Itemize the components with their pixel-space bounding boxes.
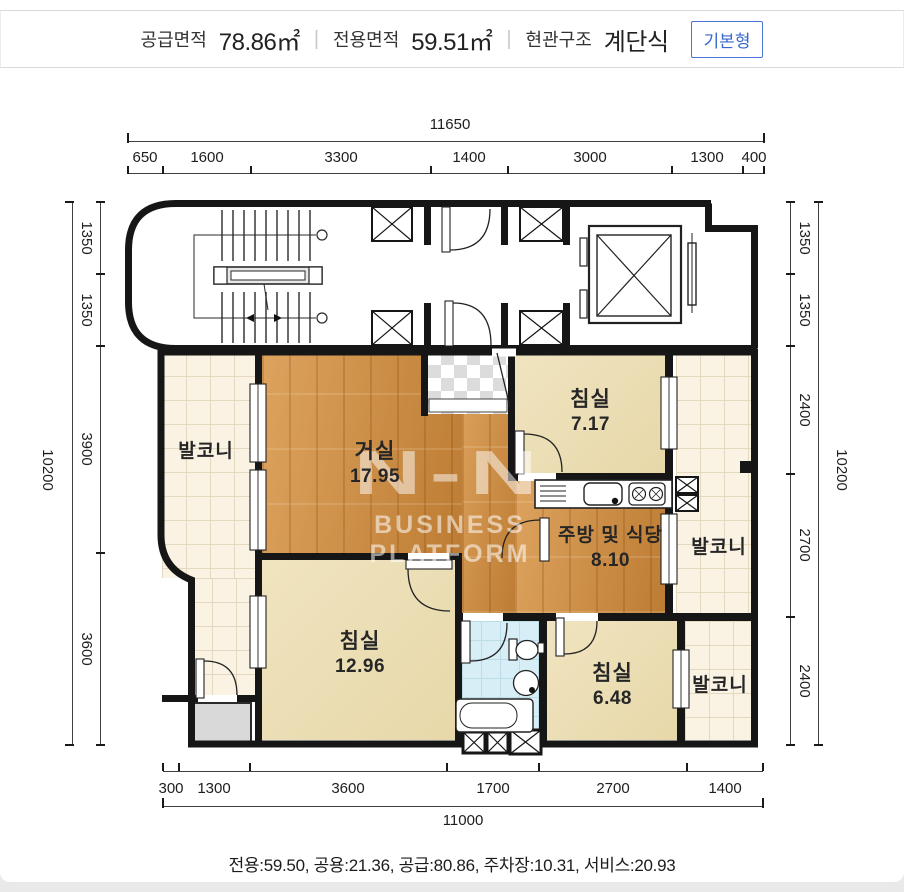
dim-left-seg2: 3900 bbox=[79, 419, 95, 479]
room-name: 발코니 bbox=[680, 674, 760, 699]
tick bbox=[786, 273, 795, 275]
dim-line bbox=[163, 806, 763, 807]
dim-top-seg3: 1400 bbox=[439, 149, 499, 166]
room-area: 12.96 bbox=[288, 655, 432, 680]
dim-left-seg3: 3600 bbox=[79, 619, 95, 679]
dim-line bbox=[128, 173, 765, 174]
dim-right-seg4: 2400 bbox=[797, 651, 813, 711]
entry-foyer-floor bbox=[428, 352, 508, 414]
tick bbox=[249, 763, 251, 771]
room-label-bedroom-648: 침실 6.48 bbox=[550, 660, 675, 712]
tick bbox=[446, 763, 448, 771]
dim-bottom-seg1: 1300 bbox=[184, 780, 244, 797]
dim-right-seg0: 1350 bbox=[797, 208, 813, 268]
dim-left-total: 10200 bbox=[40, 440, 56, 500]
dim-right-seg2: 2400 bbox=[797, 380, 813, 440]
dim-top-seg0: 650 bbox=[115, 149, 175, 166]
room-label-balcony-bottom-right: 발코니 bbox=[680, 674, 760, 699]
room-area: 6.48 bbox=[550, 687, 675, 712]
dim-top-total: 11650 bbox=[330, 116, 570, 133]
dim-line bbox=[163, 771, 763, 772]
room-name: 침실 bbox=[288, 628, 432, 655]
supply-area-label: 공급면적 bbox=[141, 26, 207, 52]
tick bbox=[65, 201, 74, 203]
plan-type-button[interactable]: 기본형 bbox=[691, 21, 764, 58]
tick bbox=[762, 763, 764, 771]
tick bbox=[127, 133, 129, 143]
room-label-bedroom-717: 침실 7.17 bbox=[528, 386, 653, 438]
tick bbox=[814, 201, 823, 203]
room-name: 발코니 bbox=[678, 536, 760, 561]
tick bbox=[763, 166, 765, 174]
room-area: 8.10 bbox=[538, 549, 683, 574]
room-label-bedroom-1296: 침실 12.96 bbox=[288, 628, 432, 680]
dim-right-seg3: 2700 bbox=[797, 515, 813, 575]
tick bbox=[96, 201, 105, 203]
room-name: 주방 및 식당 bbox=[538, 524, 683, 549]
tick bbox=[162, 763, 164, 771]
room-name: 발코니 bbox=[160, 440, 252, 465]
tick bbox=[786, 201, 795, 203]
room-label-living: 거실 17.95 bbox=[308, 438, 442, 490]
tick bbox=[127, 166, 129, 174]
dim-top-seg1: 1600 bbox=[177, 149, 237, 166]
divider: | bbox=[504, 28, 513, 51]
tick bbox=[671, 166, 673, 174]
room-label-balcony-left: 발코니 bbox=[160, 440, 252, 465]
tick bbox=[538, 763, 540, 771]
tick bbox=[786, 473, 795, 475]
dim-line bbox=[818, 202, 819, 745]
dim-bottom-seg3: 1700 bbox=[463, 780, 523, 797]
tick bbox=[763, 133, 765, 143]
balcony-right-floor bbox=[676, 352, 751, 613]
tick bbox=[96, 273, 105, 275]
room-name: 침실 bbox=[550, 660, 675, 687]
dim-bottom-seg2: 3600 bbox=[318, 780, 378, 797]
room-name: 거실 bbox=[308, 438, 442, 465]
tick bbox=[507, 166, 509, 174]
tick bbox=[96, 552, 105, 554]
dim-line bbox=[100, 202, 101, 745]
entrance-type-value: 계단식 bbox=[604, 22, 669, 57]
room-name: 침실 bbox=[528, 386, 653, 413]
dim-bottom-total: 11000 bbox=[343, 812, 583, 829]
dim-left-seg1: 1350 bbox=[79, 280, 95, 340]
tick bbox=[65, 744, 74, 746]
tick bbox=[786, 616, 795, 618]
dim-top-seg6: 400 bbox=[724, 149, 784, 166]
entrance-type-label: 현관구조 bbox=[526, 26, 592, 52]
dim-line bbox=[128, 141, 765, 142]
summary-bar: 공급면적 78.86㎡ | 전용면적 59.51㎡ | 현관구조 계단식 기본형 bbox=[0, 10, 904, 68]
tick bbox=[786, 744, 795, 746]
supply-area-value: 78.86㎡ bbox=[219, 22, 300, 57]
tick bbox=[178, 763, 180, 771]
dim-left-seg0: 1350 bbox=[79, 208, 95, 268]
page: { "header": { "items": [ {"label": "공급면적… bbox=[0, 0, 904, 892]
tick bbox=[686, 763, 688, 771]
tick bbox=[762, 798, 764, 808]
dim-bottom-seg4: 2700 bbox=[583, 780, 643, 797]
dim-right-total: 10200 bbox=[834, 440, 850, 500]
balcony-left-floor bbox=[162, 352, 255, 578]
tick bbox=[250, 166, 252, 174]
dim-right-seg1: 1350 bbox=[797, 280, 813, 340]
dim-top-seg2: 3300 bbox=[311, 149, 371, 166]
bathroom-floor bbox=[462, 621, 539, 740]
room-area: 7.17 bbox=[528, 413, 653, 438]
area-summary: 전용:59.50, 공용:21.36, 공급:80.86, 주차장:10.31,… bbox=[0, 851, 904, 876]
room-label-balcony-right: 발코니 bbox=[678, 536, 760, 561]
exclusive-area-value: 59.51㎡ bbox=[411, 22, 492, 57]
tick bbox=[96, 744, 105, 746]
balcony-left-floor bbox=[188, 578, 255, 695]
tick bbox=[430, 166, 432, 174]
exclusive-area-label: 전용면적 bbox=[333, 26, 399, 52]
utility-box bbox=[188, 702, 252, 744]
room-area: 17.95 bbox=[308, 465, 442, 490]
dim-bottom-seg5: 1400 bbox=[695, 780, 755, 797]
tick bbox=[742, 166, 744, 174]
tick bbox=[96, 345, 105, 347]
room-label-kitchen: 주방 및 식당 8.10 bbox=[538, 524, 683, 573]
dim-top-seg4: 3000 bbox=[560, 149, 620, 166]
dim-line bbox=[72, 202, 73, 745]
tick bbox=[786, 345, 795, 347]
tick bbox=[814, 744, 823, 746]
tick bbox=[162, 798, 164, 808]
divider: | bbox=[312, 28, 321, 51]
tick bbox=[162, 166, 164, 174]
